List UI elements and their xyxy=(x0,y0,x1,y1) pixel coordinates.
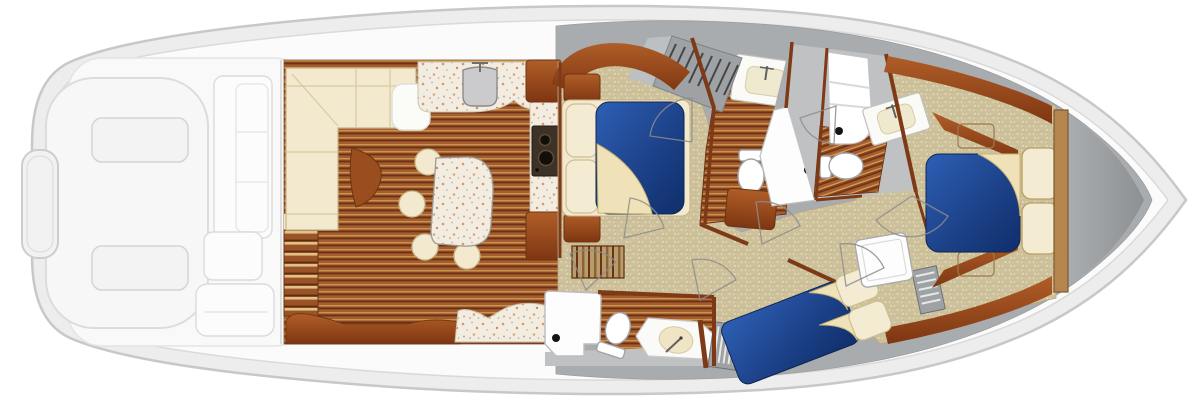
headboard-cabinet xyxy=(564,214,600,242)
cooktop xyxy=(532,126,561,176)
cooktop-knob-icon xyxy=(535,168,539,172)
master-head-toilet xyxy=(820,153,863,179)
yacht-floor-plan xyxy=(0,0,1200,400)
pillow xyxy=(566,104,598,157)
galley-sink xyxy=(463,62,497,106)
deck-hatch-top xyxy=(92,118,188,162)
cockpit-bench-side xyxy=(214,76,272,238)
floor-plan-canvas xyxy=(0,0,1200,400)
entry-steps xyxy=(284,230,318,316)
dinette-table xyxy=(431,157,493,246)
galley-cabinet-lower xyxy=(526,212,562,260)
guest-head xyxy=(545,291,722,366)
pillow xyxy=(1022,148,1058,199)
burner-icon xyxy=(539,151,554,166)
bow-bulkhead xyxy=(1054,110,1068,292)
headboard-cabinet xyxy=(564,74,600,102)
dinette-stool xyxy=(399,191,425,217)
shower-drain-icon xyxy=(552,334,560,342)
pillow xyxy=(1022,203,1058,254)
pillow xyxy=(566,160,598,213)
burner-icon xyxy=(540,135,551,146)
dinette-stool xyxy=(454,243,480,269)
shower-drain-icon xyxy=(835,127,843,135)
deck-hatch-bottom xyxy=(92,246,188,290)
cockpit xyxy=(22,58,308,346)
cockpit-bench-aft xyxy=(196,284,274,336)
salon xyxy=(281,60,562,344)
cockpit-box xyxy=(204,232,262,280)
